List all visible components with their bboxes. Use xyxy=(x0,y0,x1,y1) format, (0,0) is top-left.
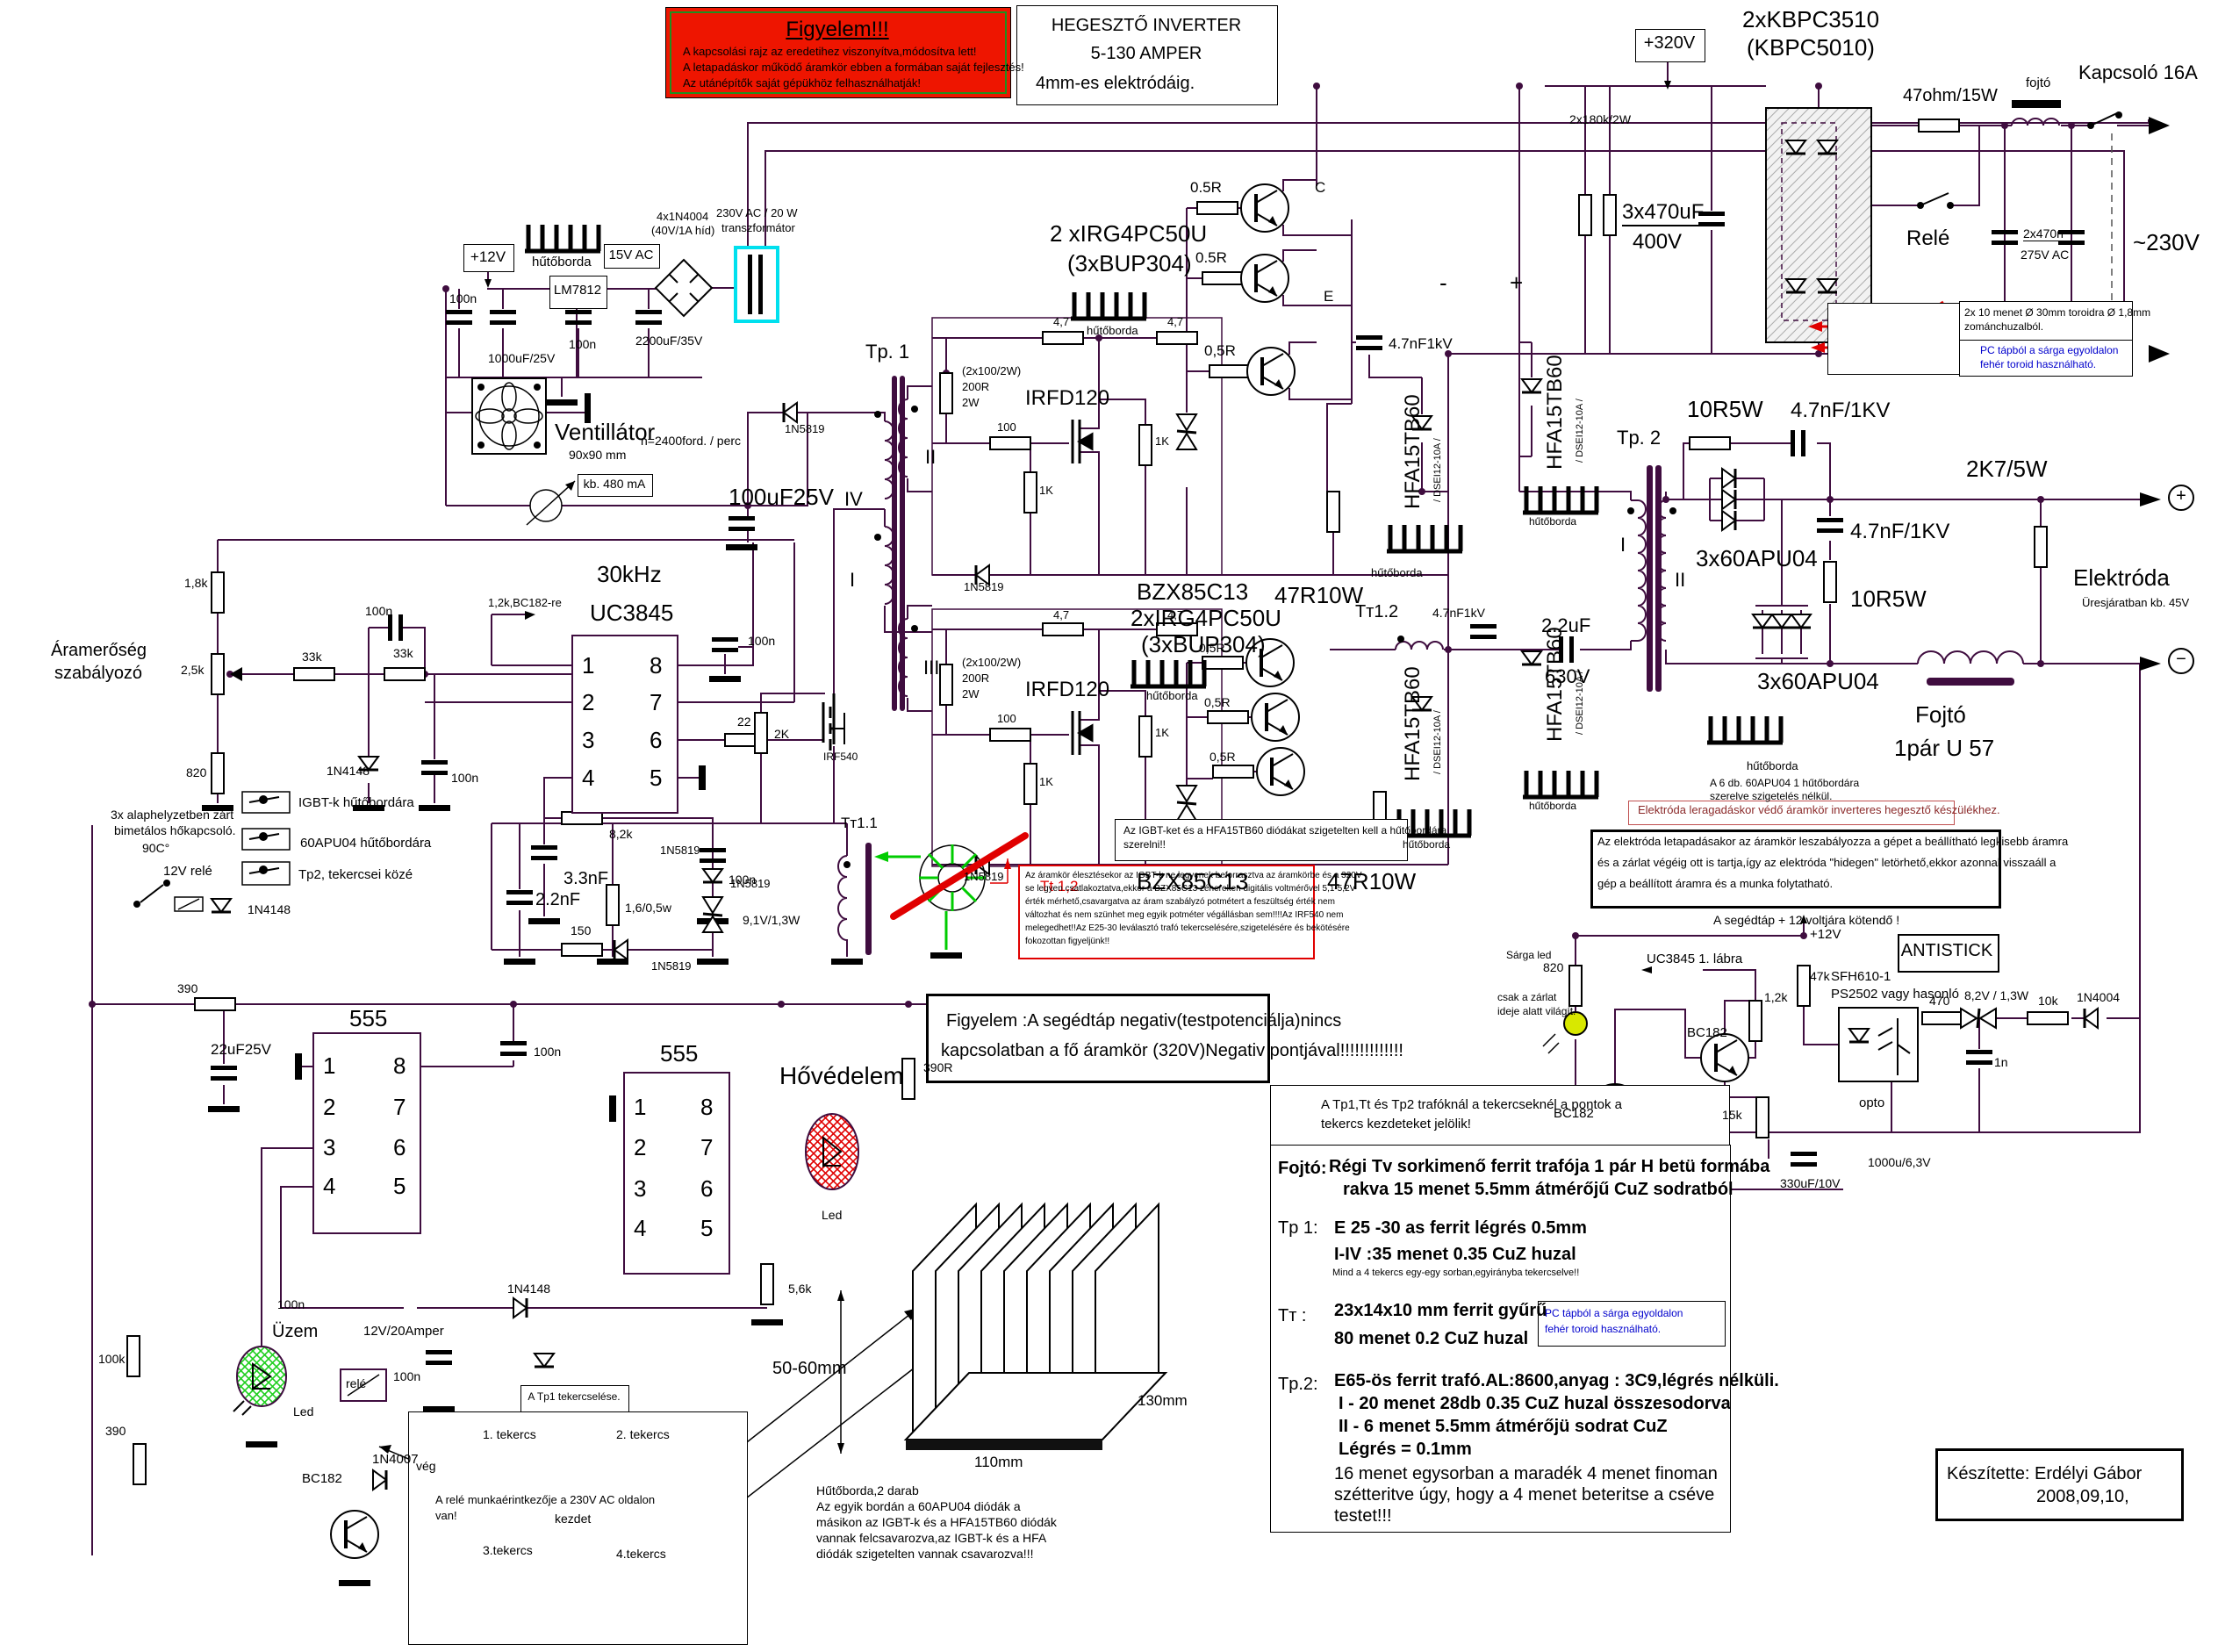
uc-pin6: 6 xyxy=(650,728,662,754)
as-r470: 470 xyxy=(1929,994,1949,1008)
red-note6: fokozottan figyeljünk!! xyxy=(1025,937,1109,947)
ctl-r9: 2K xyxy=(774,727,789,741)
drv2-r4: 1K xyxy=(1155,727,1169,740)
hs-t5: diódák szigetelten vannak csavarozva!!! xyxy=(816,1547,1033,1561)
output-minus-terminal: − xyxy=(2168,648,2194,674)
thermal-d1: 1N4148 xyxy=(248,902,291,916)
hfa-hs-b1: hűtőborda xyxy=(1403,839,1450,851)
out-hs: hűtőborda xyxy=(1747,760,1798,773)
tm-r390b: 390 xyxy=(105,1424,126,1438)
uc-pin1: 1 xyxy=(582,653,594,679)
igbt2-name1: 2xIRG4PC50U xyxy=(1131,606,1281,632)
tm-c100n3: 100n xyxy=(277,1297,305,1311)
ctl-d1: 1N4148 xyxy=(327,764,370,778)
drv2-r1: 100 xyxy=(997,713,1016,726)
antistick-desc3: gép a beállított áramra és a munka folyt… xyxy=(1597,878,1833,891)
output-plus-terminal: + xyxy=(2168,485,2194,511)
out-d1: 3x60APU04 xyxy=(1696,546,1818,572)
t2-pin1: 1 xyxy=(634,1095,646,1121)
aux-bridge-label1: 4x1N4004 xyxy=(657,211,708,224)
toroid-blue2: fehér toroid használható. xyxy=(1980,359,2096,371)
as-c1000: 1000u/6,3V xyxy=(1868,1155,1931,1169)
specs-tt-key: Tт : xyxy=(1278,1306,1307,1326)
tp1-w1: I xyxy=(850,569,855,591)
relay-label: Relé xyxy=(1906,226,1949,251)
bulk-cap-label2: 400V xyxy=(1633,230,1682,255)
tp1-w2: II xyxy=(925,446,936,468)
as-led2: csak a zárlat xyxy=(1497,992,1556,1004)
t1-pin3: 3 xyxy=(323,1135,335,1161)
fan-label3: n=2400ford. / perc xyxy=(641,434,741,448)
as-c1n: 1n xyxy=(1994,1055,2008,1069)
specs-fojto-key: Fojtó: xyxy=(1278,1159,1327,1179)
ctl-r8: 22 xyxy=(737,715,751,729)
specs-tp2b: I - 20 menet 28db 0.35 CuZ huzal összeso… xyxy=(1339,1394,1731,1414)
relay-note2: van! xyxy=(435,1510,457,1523)
as-uc: UC3845 1. lábra xyxy=(1647,952,1742,966)
igbt1-r3: 0,5R xyxy=(1204,342,1236,360)
antistick-title: Elektróda leragadáskor védő áramkör inve… xyxy=(1638,804,2000,817)
toroid-pic-box xyxy=(1827,303,1961,375)
inrush-label: 47ohm/15W xyxy=(1903,86,1998,106)
t2-pin7: 7 xyxy=(700,1135,713,1161)
hfa-label-t2: HFA15TB60 xyxy=(1543,355,1568,470)
tp1w-w4: 4.tekercs xyxy=(616,1547,666,1561)
tm-c22uf: 22uF25V xyxy=(211,1041,271,1059)
aux-c2: 1000uF/25V xyxy=(488,351,555,365)
hfa-label-b1: HFA15TB60 xyxy=(1401,666,1425,781)
led-r-label: Led xyxy=(822,1208,842,1222)
red-note3: érték mérhető,csavargatva az áram szabál… xyxy=(1025,897,1335,908)
drv1-r5: 4,7 xyxy=(1167,316,1183,329)
as-plus12: +12V xyxy=(1810,927,1841,942)
uc-pin8: 8 xyxy=(650,653,662,679)
tp1-w3: III xyxy=(923,657,939,679)
toroid-blue1: PC tápból a sárga egyoldalon xyxy=(1980,345,2118,357)
t1-pin7: 7 xyxy=(393,1095,406,1121)
toroid-note2: zománchuzalból. xyxy=(1964,321,2043,334)
antistick-note: A segédtáp + 12 voltjára kötendő ! xyxy=(1713,913,1899,927)
drv1-r7: 47R10W xyxy=(1274,583,1363,609)
tm-r390r: 390R xyxy=(923,1060,952,1074)
hs-dim3: 110mm xyxy=(974,1454,1023,1471)
plus320-label: +320V xyxy=(1635,33,1704,54)
drv1-note2: 200R xyxy=(962,381,989,394)
warning-title: Figyelem!!! xyxy=(665,18,1009,42)
tm-c100n1: 100n xyxy=(534,1045,561,1059)
electrode-label: Elektróda xyxy=(2073,565,2170,592)
tm-c100n2: 100n xyxy=(393,1369,420,1383)
bulk-cap-label1: 3x470uF xyxy=(1622,200,1704,226)
tm-d2: 1N4007 xyxy=(372,1452,419,1467)
plus12-label: +12V xyxy=(463,248,513,266)
out-choke2: 1pár U 57 xyxy=(1894,736,1994,762)
ctl-r10: 1,6/0,5w xyxy=(625,901,671,915)
warning-line3: Az utánépítők saját gépükhöz felhasználh… xyxy=(683,77,921,90)
ctl-r2: 2,5k xyxy=(181,663,204,677)
drv2-note1: (2x100/2W) xyxy=(962,657,1021,670)
current-label: kb. 480 mA xyxy=(578,477,651,491)
regulator-label1: Áramerőség xyxy=(51,641,147,661)
warning-line1: A kapcsolási rajz az eredetihez viszonyí… xyxy=(683,46,977,59)
relay-note1: A relé munkaérintkezője a 230V AC oldalo… xyxy=(435,1494,655,1507)
tp1-winding-box xyxy=(408,1411,748,1645)
tm-v12: 12V/20Amper xyxy=(363,1324,444,1339)
as-led3: ideje alatt világít. xyxy=(1497,1006,1576,1018)
red-note5: melegedhet!!Az E25-30 leválasztó trafó t… xyxy=(1025,923,1350,934)
aux-c1: 100n xyxy=(449,291,477,305)
figyelem-line2: kapcsolatban a fő áramkör (320V)Negativ … xyxy=(941,1041,1403,1061)
hot-label: Hővédelem xyxy=(779,1062,904,1090)
aux-d1: 1N5819 xyxy=(785,423,825,436)
t2-pin4: 4 xyxy=(634,1216,646,1242)
as-opto1: SFH610-1 xyxy=(1831,969,1891,984)
igbt1-name2: (3xBUP304) xyxy=(1067,251,1192,277)
uc-pin7: 7 xyxy=(650,690,662,716)
tp1-label: Tp. 1 xyxy=(865,341,909,363)
thermal-relay: 12V relé xyxy=(163,864,212,879)
tp1w-start: kezdet xyxy=(555,1512,591,1526)
ctl-c2: 100n xyxy=(451,771,478,785)
out-r2: 10R5W xyxy=(1850,586,1927,613)
as-q1: BC182 xyxy=(1687,1025,1727,1040)
ctl-c5: 100n xyxy=(748,634,775,648)
v15ac-label: 15V AC xyxy=(604,248,658,262)
thermal-l2: bimetálos hőkapcsoló. xyxy=(114,823,236,837)
mains-cap-label2: 275V AC xyxy=(2021,248,2069,262)
specs-header-box xyxy=(1270,1085,1730,1146)
thermal-l3: 90C° xyxy=(142,841,169,855)
ctl-r6: 8,2k xyxy=(609,827,632,841)
ctl-d2: 1N5819 xyxy=(651,960,692,973)
aux-heatsink-label: hűtőborda xyxy=(532,255,592,269)
specs-tp2-key: Tp.2: xyxy=(1278,1375,1318,1395)
drv1-r1: 100 xyxy=(997,421,1016,435)
hfa-hs-b2: hűtőborda xyxy=(1529,801,1576,813)
tm-r56k: 5,6k xyxy=(788,1282,811,1296)
plus-rail-label: + xyxy=(1510,270,1523,297)
drv2-r9: 0,5R xyxy=(1209,750,1236,764)
out-c2: 4.7nF/1KV xyxy=(1850,520,1949,544)
igbt1-name1: 2 xIRG4PC50U xyxy=(1050,221,1207,248)
as-z82: 8,2V / 1,3W xyxy=(1964,988,2028,1002)
out-note1: A 6 db. 60APU04 1 hűtőbordára xyxy=(1710,778,1859,790)
tt11-label: Tт1.1 xyxy=(841,815,878,832)
hfa-label-t1: HFA15TB60 xyxy=(1401,394,1425,509)
drv2-r5: 1K xyxy=(1039,776,1053,789)
drv2-r2: 4,7 xyxy=(1053,609,1069,622)
tt12-label: Tт1.2 xyxy=(1355,602,1398,622)
specs-tp2f: szétteritve úgy, hogy a 4 menet beterits… xyxy=(1334,1485,1714,1505)
out-r3: 2K7/5W xyxy=(1966,456,2048,483)
specs-tp2d: Légrés = 0.1mm xyxy=(1339,1440,1472,1460)
tp1w-w2: 2. tekercs xyxy=(616,1427,670,1441)
ctl-d4: 1N5819 xyxy=(730,878,771,891)
emitter-label: E xyxy=(1324,288,1333,305)
tm-q: BC182 xyxy=(302,1471,342,1486)
collector-label: C xyxy=(1315,179,1325,197)
mains-cap-label1: 2x470n xyxy=(2023,226,2064,241)
hfa-alt-b1: / DSEI12-10A / xyxy=(1432,710,1444,774)
antistick-desc1: Az elektróda letapadásakor az áramkör le… xyxy=(1597,836,2068,849)
drv1-d1: 1N5819 xyxy=(964,581,1004,594)
tp1w-w1: 1. tekercs xyxy=(483,1427,536,1441)
hs-t4: vannak felcsavarozva,az IGBT-k és a HFA xyxy=(816,1531,1046,1545)
idle-label: Üresjáratban kb. 45V xyxy=(2082,597,2189,610)
fan-label2: 90x90 mm xyxy=(569,448,626,462)
specs-blue1: PC tápból a sárga egyoldalon xyxy=(1545,1308,1683,1320)
t1-pin4: 4 xyxy=(323,1174,335,1200)
ctl-r4: 33k xyxy=(302,650,322,664)
ctl-d3: 1N5819 xyxy=(660,844,700,858)
drv1-note1: (2x100/2W) xyxy=(962,365,1021,378)
ctl-c6: 2.2nF xyxy=(535,890,580,910)
igbt1-r2: 0.5R xyxy=(1195,249,1227,267)
specs-tp1-key: Tp 1: xyxy=(1278,1218,1318,1239)
ac-label: ~230V xyxy=(2133,230,2200,256)
red-note1: Az áramkör élesztésekor az IGBT-k ne leg… xyxy=(1025,871,1362,881)
drv1-note3: 2W xyxy=(962,397,980,410)
t1-pin6: 6 xyxy=(393,1135,406,1161)
specs-tp2e: 16 menet egysorban a maradék 4 menet fin… xyxy=(1334,1464,1718,1484)
thermal-l1: 3x alaphelyzetben zárt xyxy=(111,808,233,822)
timer2-label: 555 xyxy=(660,1041,698,1067)
tp1w-end: vég xyxy=(416,1459,436,1473)
freq-label: 30kHz xyxy=(597,562,662,588)
specs-tp1a: E 25 -30 as ferrit légrés 0.5mm xyxy=(1334,1218,1587,1239)
drv2-r7: 0,5R xyxy=(1199,641,1225,655)
ctl-z1: 9,1V/1,3W xyxy=(743,913,800,927)
ctl-c1: 100n xyxy=(365,604,392,618)
drv2-cap2a: 2.2uF xyxy=(1541,614,1590,636)
igbt2-hs: hűtőborda xyxy=(1146,690,1198,703)
bridge-label2: (KBPC5010) xyxy=(1747,35,1875,61)
t1-pin5: 5 xyxy=(393,1174,406,1200)
antistick-title-label: ANTISTICK xyxy=(1898,941,1996,961)
rele-label: relé xyxy=(346,1376,366,1390)
specs-tp1c: Mind a 4 tekercs egy-egy sorban,egyirány… xyxy=(1332,1268,1579,1279)
credit-box xyxy=(1935,1448,2184,1521)
igbt1-r1: 0.5R xyxy=(1190,179,1222,197)
uc-pin4: 4 xyxy=(582,765,594,792)
drv1-r3: 1K xyxy=(1039,485,1053,498)
ctl-r1: 1,8k xyxy=(184,576,207,590)
igbt-note2: szerelni!! xyxy=(1123,839,1166,851)
note-12k: 1,2k,BC182-re xyxy=(488,597,562,610)
tp2-label: Tp. 2 xyxy=(1617,427,1661,449)
hs-t3: másikon az IGBT-k és a HFA15TB60 diódák xyxy=(816,1515,1057,1529)
hs-t2: Az egyik bordán a 60APU04 diódák a xyxy=(816,1499,1021,1513)
drv1-r4: 4,7 xyxy=(1053,316,1069,329)
t2-pin8: 8 xyxy=(700,1095,713,1121)
as-led1: Sárga led xyxy=(1506,950,1551,962)
thermal-sw2: 60APU04 hűtőbordára xyxy=(300,836,431,851)
out-r1: 10R5W xyxy=(1687,397,1763,423)
drv2-cap: 4.7nF1kV xyxy=(1432,606,1485,620)
uc-pin3: 3 xyxy=(582,728,594,754)
out-d2: 3x60APU04 xyxy=(1757,669,1879,695)
t2-pin5: 5 xyxy=(700,1216,713,1242)
ctl-r7: 150 xyxy=(571,923,591,937)
tm-r100k: 100k xyxy=(98,1352,125,1366)
drv2-d1: 1N5819 xyxy=(964,871,1004,884)
as-opto3: opto xyxy=(1859,1095,1884,1110)
out-c1: 4.7nF/1KV xyxy=(1791,399,1890,423)
ctl-c3: 3.3nF xyxy=(563,869,608,889)
out-note2: szerelve szigetelés nélkül. xyxy=(1710,791,1832,803)
tp2-w2: II xyxy=(1675,569,1685,591)
aux-c3: 100n xyxy=(569,337,596,351)
specs-blue2: fehér toroid használható. xyxy=(1545,1324,1661,1336)
uzem-label: Üzem xyxy=(272,1322,318,1342)
uc-pin2: 2 xyxy=(582,690,594,716)
igbt1-cap: 4.7nF1kV xyxy=(1389,335,1453,353)
tp1w-title: A Tp1 tekercselése. xyxy=(520,1391,628,1404)
aux-bridge-label2: (40V/1A híd) xyxy=(651,225,714,238)
credit-line1: Készítette: Erdélyi Gábor xyxy=(1947,1464,2142,1484)
figyelem-box xyxy=(926,994,1270,1083)
as-r47k: 47k xyxy=(1810,969,1830,983)
hfa-hs-t2: hűtőborda xyxy=(1529,516,1576,528)
timer1-label: 555 xyxy=(349,1006,387,1032)
schematic-drawing xyxy=(0,0,2218,1652)
drv2-fet: IRFD120 xyxy=(1025,678,1109,702)
aux-trafo-label1: 230V AC / 20 W xyxy=(716,207,798,220)
bleeder-label: 2x180k/2W xyxy=(1569,112,1631,126)
tm-d1: 1N4148 xyxy=(507,1282,550,1296)
warning-line2: A letapadáskor működő áramkör ebben a fo… xyxy=(683,61,1024,75)
drv1-hs: hűtőborda xyxy=(1371,567,1423,580)
drv1-zener: BZX85C13 xyxy=(1137,579,1248,606)
out-choke1: Fojtó xyxy=(1915,702,1966,729)
choke-label: fojtó xyxy=(2026,75,2050,90)
minus-rail-label: - xyxy=(1439,270,1447,297)
igbt1-hs: hűtőborda xyxy=(1087,325,1138,338)
drv2-note2: 200R xyxy=(962,672,989,686)
as-d1: 1N4004 xyxy=(2077,990,2120,1004)
t2-pin6: 6 xyxy=(700,1176,713,1203)
schematic-page: + − Figyelem!!! A kapcsolási rajz az ere… xyxy=(0,0,2218,1652)
igbt-note1: Az IGBT-ket és a HFA15TB60 diódákat szig… xyxy=(1123,825,1446,837)
uc3845-label: UC3845 xyxy=(590,600,673,627)
specs-ttb: 80 menet 0.2 CuZ huzal xyxy=(1334,1329,1528,1349)
aux-c4: 2200uF/35V xyxy=(635,334,702,348)
specs-fojto2: rakva 15 menet 5.5mm átmérőjű CuZ sodrat… xyxy=(1343,1180,1733,1200)
drv1-fet: IRFD120 xyxy=(1025,386,1109,411)
credit-line2: 2008,09,10, xyxy=(2036,1487,2129,1507)
specs-fojto1: Régi Tv sorkimenő ferrit trafója 1 pár H… xyxy=(1329,1157,1769,1177)
as-r10k: 10k xyxy=(2038,994,2058,1008)
uc-pin5: 5 xyxy=(650,765,662,792)
thermal-sw3: Tp2, tekercsei közé xyxy=(298,867,413,882)
drv2-r3: 4,7 xyxy=(1167,609,1183,622)
aux-c5: 100uF25V xyxy=(729,485,834,511)
drv2-r8: 0,5R xyxy=(1204,695,1231,709)
hfa-alt-t2: / DSEI12-10A / xyxy=(1575,399,1586,463)
bridge-label1: 2xKBPC3510 xyxy=(1742,7,1879,33)
thermal-sw1: IGBT-k hűtőbordára xyxy=(298,795,414,810)
red-note2: se legyen csatlakoztatva,ekkor a BZX85C1… xyxy=(1025,884,1355,894)
tp2-w1: I xyxy=(1620,534,1626,556)
specs-tp2a: E65-ös ferrit trafó.AL:8600,anyag : 3C9,… xyxy=(1334,1371,1779,1391)
specs-hdr2: tekercs kezdeteket jelölik! xyxy=(1321,1117,1471,1131)
toroid-note1: 2x 10 menet Ø 30mm toroidra Ø 1,8mm xyxy=(1964,307,2150,320)
as-r15k: 15k xyxy=(1722,1108,1742,1122)
specs-tp1b: I-IV :35 menet 0.35 CuZ huzal xyxy=(1334,1245,1576,1265)
t1-pin2: 2 xyxy=(323,1095,335,1121)
title-line3: 4mm-es elektródáig. xyxy=(1036,74,1195,94)
regulator-label2: szabályozó xyxy=(54,664,142,684)
tp1-w4: IV xyxy=(844,488,863,510)
irf540-label: IRF540 xyxy=(823,751,858,764)
switch-label: Kapcsoló 16A xyxy=(2078,61,2198,83)
title-line1: HEGESZTŐ INVERTER xyxy=(1016,16,1276,36)
specs-tta: 23x14x10 mm ferrit gyűrű xyxy=(1334,1301,1547,1321)
figyelem-line1: Figyelem :A segédtáp negativ(testpotenci… xyxy=(946,1011,1341,1031)
drv1-r2: 1K xyxy=(1155,435,1169,449)
t1-pin8: 8 xyxy=(393,1053,406,1080)
specs-tp2g: testet!!! xyxy=(1334,1506,1392,1526)
tp1w-w3: 3.tekercs xyxy=(483,1543,533,1557)
drv2-note3: 2W xyxy=(962,688,980,701)
tm-r390a: 390 xyxy=(177,981,197,995)
red-note4: változhat és nem szünhet meg egyik potmé… xyxy=(1025,910,1343,921)
title-line2: 5-130 AMPER xyxy=(1016,44,1276,64)
ctl-r3: 820 xyxy=(186,765,206,779)
hfa-alt-t1: / DSEI12-10A / xyxy=(1432,438,1444,502)
aux-trafo-label2: transzformátor xyxy=(721,222,795,235)
t1-pin1: 1 xyxy=(323,1053,335,1080)
hs-dim2: 130mm xyxy=(1138,1392,1188,1410)
hs-t1: Hűtőborda,2 darab xyxy=(816,1483,919,1498)
specs-hdr1: A Tp1,Tt és Tp2 trafóknál a tekercseknél… xyxy=(1321,1097,1622,1112)
hs-dim1: 50-60mm xyxy=(772,1359,846,1379)
ctl-r5: 33k xyxy=(393,646,413,660)
as-r12k: 1,2k xyxy=(1764,990,1787,1004)
t2-pin3: 3 xyxy=(634,1176,646,1203)
as-c330: 330uF/10V xyxy=(1780,1176,1841,1190)
specs-tp2c: II - 6 menet 5.5mm átmérőjü sodrat CuZ xyxy=(1339,1417,1668,1437)
drv2-cap2b: 630V xyxy=(1545,665,1590,687)
t2-pin2: 2 xyxy=(634,1135,646,1161)
antistick-desc2: és a zárlat végéig ott is tartja,így az … xyxy=(1597,857,2056,870)
as-r820: 820 xyxy=(1543,960,1563,974)
lm7812-label: LM7812 xyxy=(549,283,606,298)
led-g-label: Led xyxy=(293,1404,313,1419)
